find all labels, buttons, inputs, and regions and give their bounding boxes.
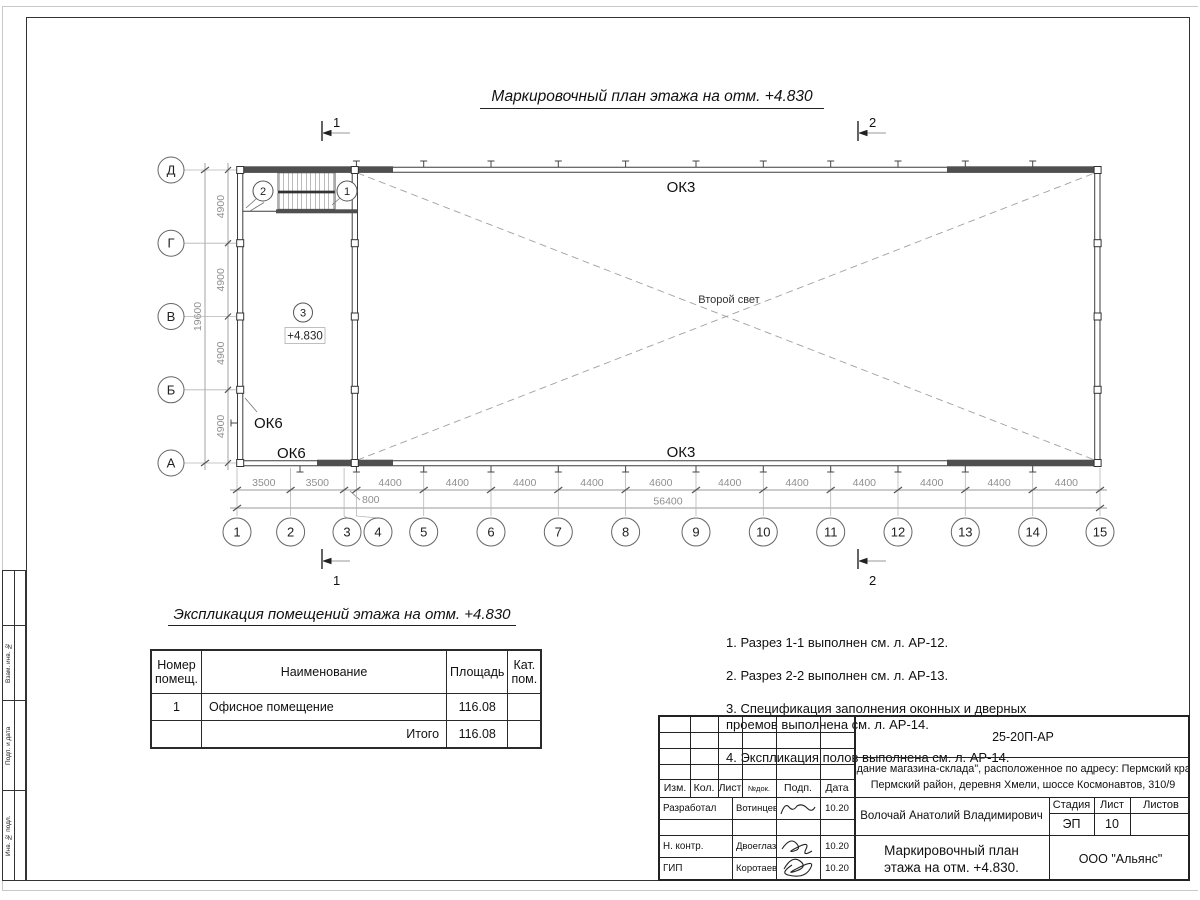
explication-header-row: Номер помещ. Наименование Площадь Кат. п… (151, 650, 541, 694)
axis-number: 11 (824, 525, 838, 540)
tb-sheet-header: Лист (1094, 797, 1130, 813)
tb-doc-code: 25-20П-АР (854, 717, 1190, 757)
dim-value: 4400 (920, 477, 944, 489)
tb-company: ООО "Альянс" (1049, 835, 1190, 881)
dim-value: 4400 (378, 477, 402, 489)
stair-mark-number: 2 (260, 186, 266, 198)
axis-number: 13 (958, 525, 972, 540)
tb-sheets-header: Листов (1130, 797, 1190, 813)
tb-sheets-value (1130, 813, 1190, 835)
section-mark-2-top: 2 (858, 115, 886, 141)
tb-address-line1: "Здание магазина-склада", расположенное … (856, 760, 1190, 777)
tb-drawing-title-line2: этажа на отм. +4.830. (854, 858, 1049, 876)
dim-value: 4400 (446, 477, 470, 489)
dimension-lines (205, 163, 1107, 508)
axis-number: 9 (692, 525, 699, 540)
axis-letter: А (167, 456, 176, 471)
axis-number: 14 (1025, 525, 1039, 540)
walls-thick (237, 166, 1100, 466)
axis-letter: Д (167, 163, 176, 178)
axis-number: 1 (233, 525, 240, 540)
table-total-row: Итого 116.08 (151, 721, 541, 749)
col-header: Площадь (447, 650, 508, 694)
dim-value: 4900 (215, 195, 227, 219)
tb-name: Двоеглазов (734, 835, 776, 857)
col-header: Кат. пом. (508, 650, 541, 694)
tb-name: Вотинцева (734, 797, 776, 819)
note-line: 2. Разрез 2-2 выполнен см. л. АР-13. (726, 668, 1026, 684)
axis-letter: Б (167, 382, 176, 397)
dim-value: 4600 (649, 477, 673, 489)
tb-header-ndok: №док. (742, 779, 776, 797)
dim-value: 3500 (306, 477, 330, 489)
dim-total-bottom: 56400 (653, 496, 682, 508)
section-number: 1 (333, 115, 340, 130)
section-number: 2 (869, 115, 876, 130)
tb-header-podp: Подп. (776, 779, 820, 797)
dim-800: 800 (362, 494, 380, 506)
tb-drawing-title-line1: Маркировочный план (854, 841, 1049, 859)
axis-number: 12 (891, 525, 905, 540)
table-row: 1 Офисное помещение 116.08 (151, 694, 541, 721)
tb-date: 10.20 (820, 835, 854, 857)
section-number: 2 (869, 573, 876, 588)
tb-stage-value: ЭП (1049, 813, 1094, 835)
dim-value: 4400 (580, 477, 604, 489)
axis-letter: Г (167, 236, 174, 251)
axis-number: 5 (420, 525, 427, 540)
dim-value: 4400 (513, 477, 537, 489)
col-header: Наименование (202, 650, 447, 694)
level-mark: +4.830 (285, 328, 325, 344)
tb-role: Н. контр. (661, 835, 732, 857)
dim-value: 4400 (1055, 477, 1079, 489)
dim-value: 4400 (853, 477, 877, 489)
tb-address-line2: Пермский район, деревня Хмели, шоссе Кос… (856, 776, 1190, 793)
explication-title: Экспликация помещений этажа на отм. +4.8… (168, 606, 516, 626)
section-mark-2-bottom: 2 (858, 549, 886, 588)
room-number-cell: 1 (151, 694, 202, 721)
window-label-ok3-top: ОК3 (667, 179, 696, 196)
tb-role: Разработал (661, 797, 732, 819)
tb-stage-header: Стадия (1049, 797, 1094, 813)
second-light-diagonals (358, 173, 1095, 460)
tb-sheet-value: 10 (1094, 813, 1130, 835)
room-mark: 3 (294, 303, 313, 322)
tb-header-data: Дата (820, 779, 854, 797)
tb-date: 10.20 (820, 857, 854, 879)
axis-number: 4 (374, 525, 381, 540)
total-label: Итого (202, 721, 447, 749)
ok6-leader (245, 398, 257, 412)
dim-value: 4900 (215, 415, 227, 439)
col-header: Номер помещ. (151, 650, 202, 694)
axis-number: 15 (1093, 525, 1107, 540)
room-name-cell: Офисное помещение (202, 694, 447, 721)
axis-number: 3 (343, 525, 350, 540)
dim-value: 4400 (718, 477, 742, 489)
tb-name: Коротаев (734, 857, 776, 879)
dim-value: 4400 (785, 477, 809, 489)
tb-role: ГИП (661, 857, 732, 879)
tb-header-kol: Кол. (690, 779, 718, 797)
section-number: 1 (333, 573, 340, 588)
window-label-ok6-left: ОК6 (254, 415, 283, 432)
signature (778, 799, 818, 819)
section-mark-1-bottom: 1 (322, 549, 350, 588)
axis-number: 7 (555, 525, 562, 540)
dim-value: 4400 (987, 477, 1011, 489)
axis-number: 6 (487, 525, 494, 540)
section-mark-1-top: 1 (322, 115, 350, 141)
axis-number: 2 (287, 525, 294, 540)
drawing-title: Маркировочный план этажа на отм. +4.830 (480, 88, 824, 109)
stair-mark-number: 1 (344, 186, 350, 198)
window-label-ok6-bottom: ОК6 (277, 445, 306, 462)
dim-value: 4900 (215, 268, 227, 292)
tb-date: 10.20 (820, 797, 854, 819)
total-value: 116.08 (447, 721, 508, 749)
dim-value: 3500 (252, 477, 276, 489)
window-label-ok3-bottom: ОК3 (667, 444, 696, 461)
axis-letter: В (167, 309, 176, 324)
dim-value: 4900 (215, 341, 227, 365)
note-line: 1. Разрез 1-1 выполнен см. л. АР-12. (726, 635, 1026, 651)
signature (776, 835, 820, 881)
room-area-cell: 116.08 (447, 694, 508, 721)
axis-number: 8 (622, 525, 629, 540)
explication-table: Номер помещ. Наименование Площадь Кат. п… (150, 649, 542, 749)
room-cat-cell (508, 694, 541, 721)
room-number: 3 (300, 308, 306, 320)
tb-chief-name: Волочай Анатолий Владимирович (854, 797, 1049, 835)
tb-header-izm: Изм. (660, 779, 690, 797)
tb-header-list: Лист (718, 779, 742, 797)
axis-number: 10 (756, 525, 770, 540)
title-block: Изм. Кол. Лист №док. Подп. Дата Разработ… (658, 715, 1190, 881)
level-value: +4.830 (287, 331, 323, 343)
walls-thin (237, 167, 1100, 466)
second-light-label: Второй свет (698, 294, 759, 306)
